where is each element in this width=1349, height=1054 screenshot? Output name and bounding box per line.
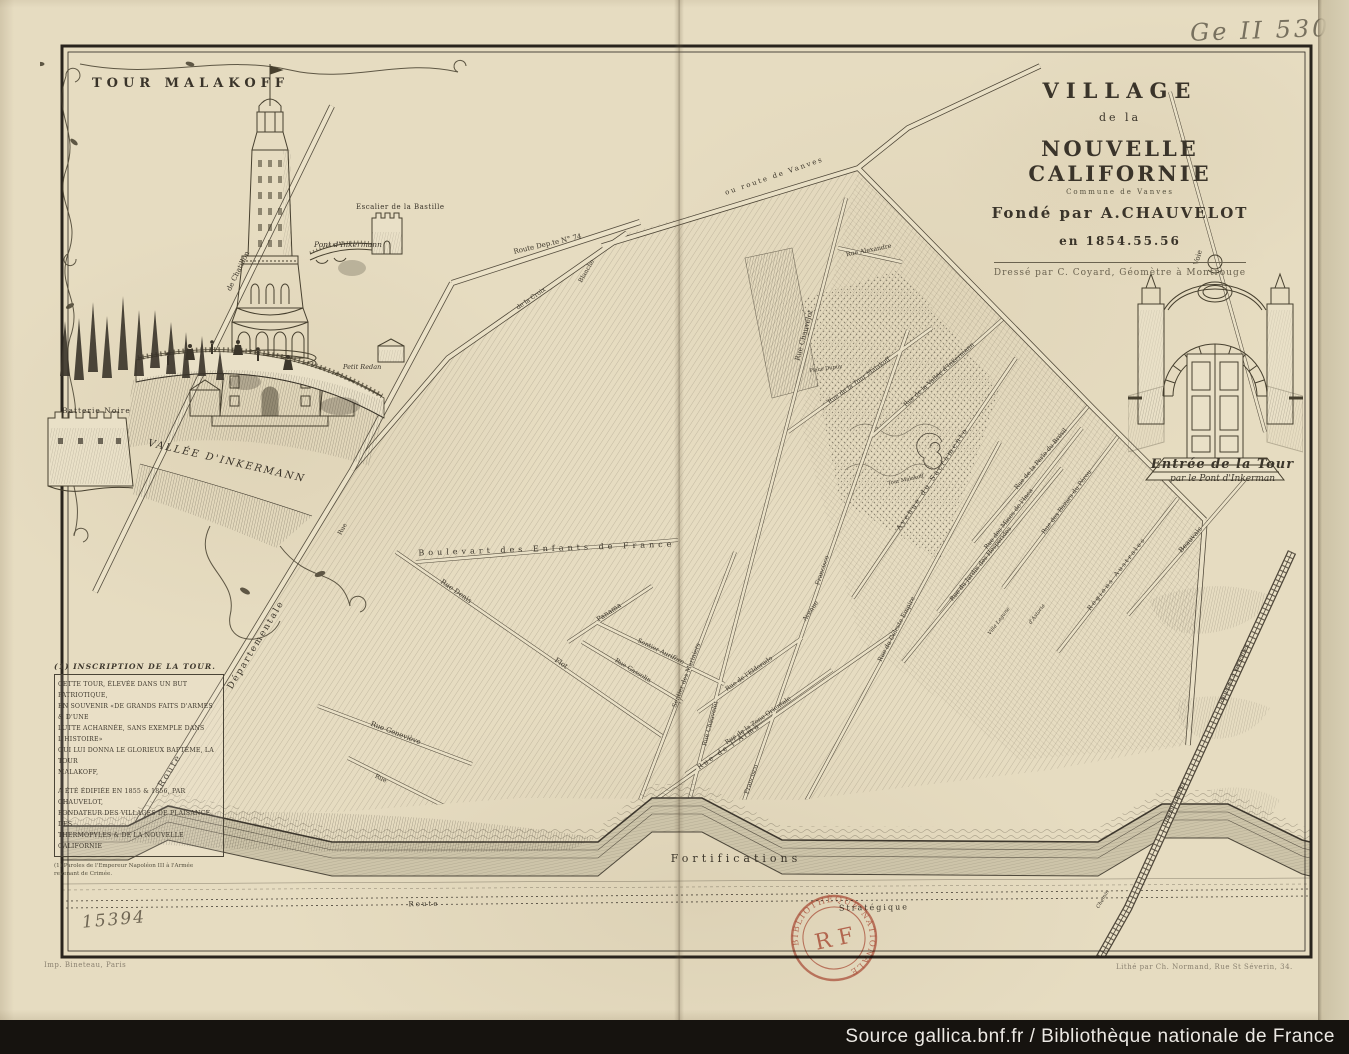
inscription-line: QUI LUI DONNA LE GLORIEUX BAPTÊME, LA TO… [58,745,220,767]
center-fold [674,0,684,1020]
inscription-line: CETTE TOUR, ÉLEVÉE DANS UN BUT PATRIOTIQ… [58,679,220,701]
map-years: en 1854.55.56 [975,234,1265,248]
entree-tour-vignette [1128,246,1303,486]
entree-caption: Entrée de la Tour par le Pont d'Inkerman [1135,457,1310,484]
inscription-line: LUTTE ACHARNÉE, SANS EXEMPLE DANS L'HIST… [58,723,220,745]
sheet-edge [1318,0,1349,1020]
map-commune: Commune de Vanves [975,188,1265,196]
batterie-noire-sketch [48,412,133,491]
street-label: de Paris à Versailles [1219,643,1251,703]
cypress-trees [60,296,224,380]
vignette-title: TOUR MALAKOFF [92,76,289,91]
inscription-line: THERMOPYLES & DE LA NOUVELLE CALIFORNIE [58,830,220,852]
map-title-main: NOUVELLE CALIFORNIE [975,136,1265,186]
source-text: Source gallica.bnf.fr / Bibliothèque nat… [845,1026,1335,1047]
stamp-center-text: R F [813,923,856,956]
pont-label: Pont d'Inkermann [314,240,382,249]
printer-imprint-left: Imp. Bineteau, Paris [44,961,126,969]
map-subtitle: de la [975,111,1265,124]
tour-malakoff-vignette [40,46,470,656]
inscription-line: MALAKOFF, [58,767,220,778]
street-label: Chemin [1095,889,1110,910]
bridge-and-bastille [310,213,402,263]
gallica-source-bar: Source gallica.bnf.fr / Bibliothèque nat… [0,1020,1349,1054]
escalier-label: Escalier de la Bastille [356,203,445,211]
inscription-footnote: (1) Paroles de l'Empereur Napoléon III à… [54,862,224,878]
inscription-line: EN SOUVENIR «DE GRANDS FAITS D'ARMES & D… [58,701,220,723]
fortifications-label: Fortifications [671,852,801,865]
inscription-line: A ÉTÉ ÉDIFIÉE EN 1855 & 1856, PAR CHAUVE… [58,786,220,808]
batterie-noire-label: Batterie Noire [62,406,131,415]
title-block: VILLAGE de la NOUVELLE CALIFORNIE Commun… [975,78,1265,279]
bnf-stamp: BIBLIOTHÈQUE NATIONALE R F [777,881,891,995]
map-founder: Fondé par A.CHAUVELOT [975,204,1265,222]
surveyor-credit: Dressé par C. Coyard, Géomètre à Montrou… [994,262,1246,278]
street-label: Route [408,900,439,909]
map-title: VILLAGE [975,78,1265,103]
petit-redan-label: Petit Redan [343,363,381,371]
inscription-heading: (1) INSCRIPTION DE LA TOUR. [54,662,224,671]
petit-redan-sketch [378,339,404,362]
inscription-line: FONDATEUR DES VILLAGES DE PLAISANCE, DES [58,808,220,830]
inscription-box: (1) INSCRIPTION DE LA TOUR. CETTE TOUR, … [54,662,224,878]
lithographer-imprint-right: Lithé par Ch. Normand, Rue St Séverin, 3… [1116,963,1293,971]
